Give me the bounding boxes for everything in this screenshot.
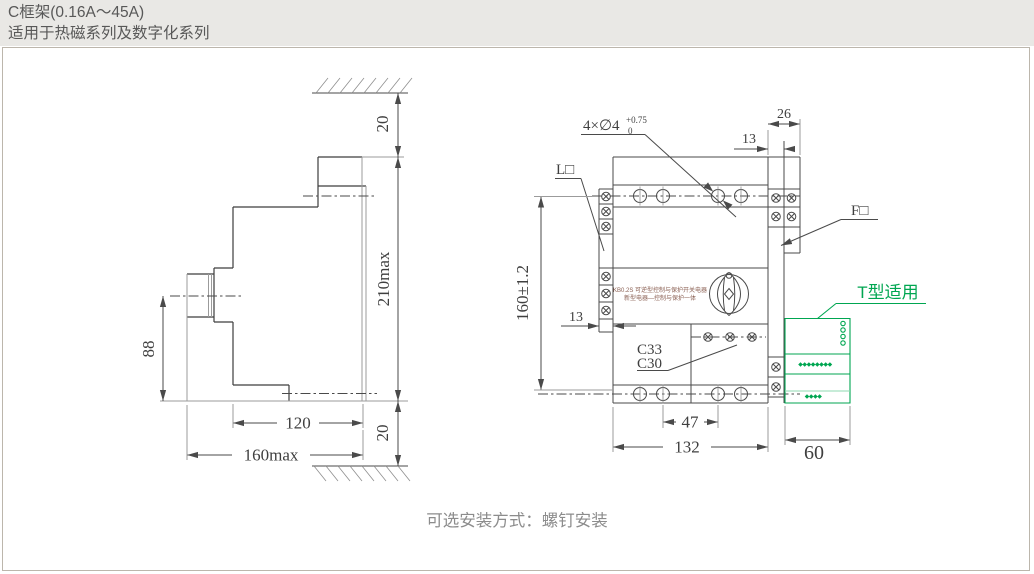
datasheet-page: C框架(0.16A～45A) 适用于热磁系列及数字化系列 xyxy=(0,0,1034,574)
dim-terminal-offset-13: 13 xyxy=(569,310,583,325)
side-view: 20 210max 20 88 120 160max xyxy=(139,78,412,481)
front-view: KB0.2S 可逆型控制与保护开关电器 新型电器—控制与保护一体 4×∅4 +0… xyxy=(513,107,926,464)
hole-callout-sup: +0.75 xyxy=(626,115,647,125)
l-terminal-label: L□ xyxy=(555,162,604,251)
dim-upper-width-120: 120 xyxy=(285,414,311,433)
f-rail-label: F□ xyxy=(781,203,878,246)
dim-width-132: 132 xyxy=(674,438,700,457)
frame-code-labels: C33 C30 xyxy=(637,342,737,372)
indicator-dots-row1 xyxy=(798,362,832,367)
mounting-note: 可选安装方式：螺钉安装 xyxy=(0,507,1034,531)
wall-hatch-top-icon xyxy=(312,78,412,93)
t-type-accessory: T型适用 xyxy=(785,283,926,403)
side-view-dimensions: 20 210max 20 88 120 160max xyxy=(139,93,398,466)
breaker-side-profile xyxy=(160,157,408,401)
l-terminal-text: L□ xyxy=(556,162,574,178)
faceplate-text-line2: 新型电器—控制与保护一体 xyxy=(624,294,696,302)
dim-height-160: 160±1.2 xyxy=(513,265,532,321)
wall-hatch-bottom-icon xyxy=(312,466,410,481)
dim-height-210max: 210max xyxy=(374,251,393,306)
indicator-dots-row2 xyxy=(805,394,822,399)
f-rail-text: F□ xyxy=(851,203,868,219)
hole-callout-sub: 0 xyxy=(628,126,633,136)
dim-side-unit-60: 60 xyxy=(804,442,824,464)
dim-width-160max: 160max xyxy=(244,446,299,465)
front-view-dimensions: 160±1.2 13 47 132 26 xyxy=(513,107,850,464)
breaker-front-body xyxy=(538,141,800,403)
technical-drawing-canvas: 20 210max 20 88 120 160max xyxy=(0,0,1034,574)
dim-top-gap: 20 xyxy=(373,116,392,133)
rotary-handle-icon xyxy=(710,273,749,316)
dim-hole-span-47: 47 xyxy=(682,413,700,432)
t-type-label: T型适用 xyxy=(857,283,918,302)
frame-code-c30: C30 xyxy=(637,356,662,372)
faceplate-text-line1: KB0.2S 可逆型控制与保护开关电器 xyxy=(613,286,707,294)
hole-callout-text: 4×∅4 xyxy=(583,118,620,134)
dim-center-height-88: 88 xyxy=(139,341,158,358)
dim-f-half-13: 13 xyxy=(742,132,756,147)
dim-f-width-26: 26 xyxy=(777,107,791,122)
dim-bottom-gap: 20 xyxy=(373,425,392,442)
hole-callout: 4×∅4 +0.75 0 xyxy=(581,115,736,217)
